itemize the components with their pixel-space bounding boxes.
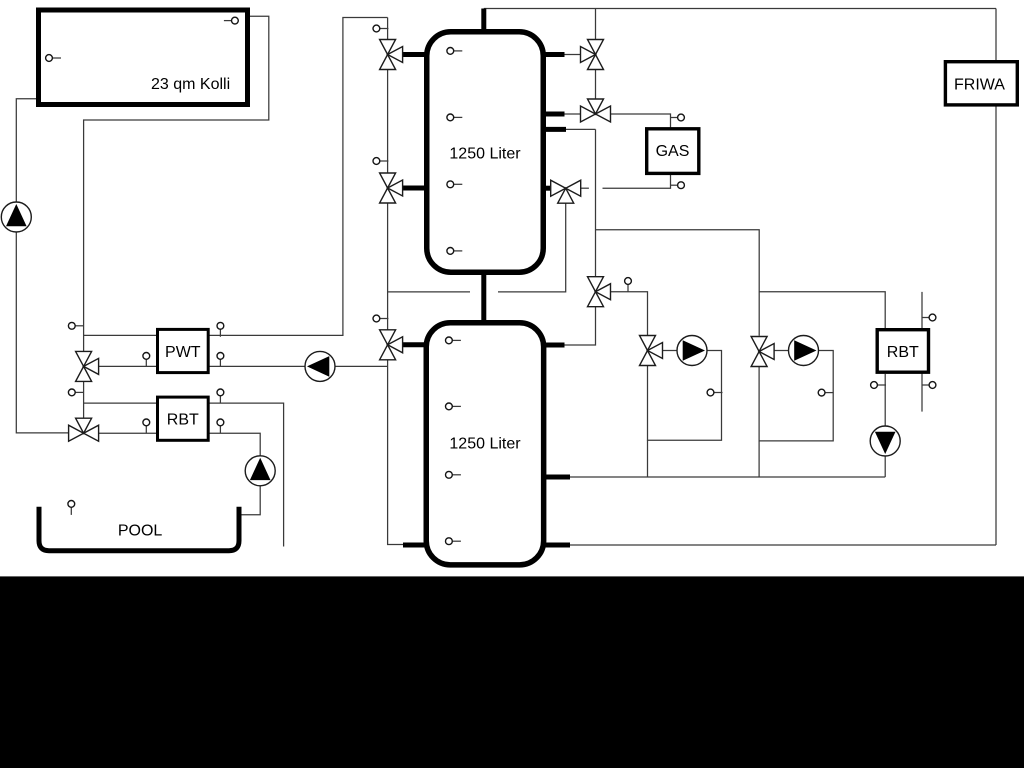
- svg-text:PWT: PWT: [165, 344, 201, 361]
- svg-text:RBT: RBT: [887, 344, 919, 361]
- svg-text:1250 Liter: 1250 Liter: [449, 145, 521, 162]
- svg-text:23 qm Kolli: 23 qm Kolli: [151, 76, 230, 93]
- svg-text:POOL: POOL: [118, 523, 163, 540]
- svg-text:RBT: RBT: [167, 411, 199, 428]
- svg-text:FRIWA: FRIWA: [954, 76, 1005, 93]
- svg-text:GAS: GAS: [656, 143, 690, 160]
- svg-text:1250 Liter: 1250 Liter: [449, 435, 521, 452]
